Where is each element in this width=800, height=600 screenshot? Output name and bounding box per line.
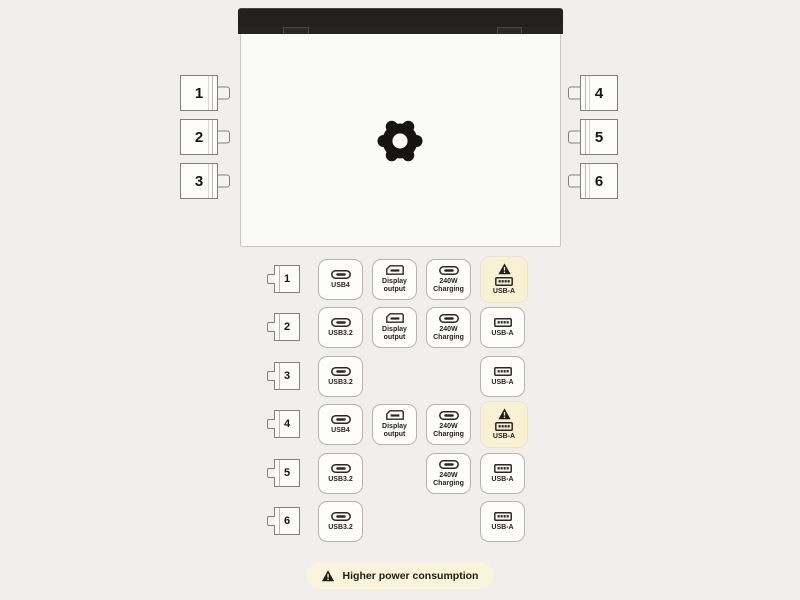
capability-badge-usb-a-port-1: USB-A bbox=[480, 256, 528, 303]
port-number: 5 bbox=[595, 129, 603, 146]
port-number: 4 bbox=[595, 85, 603, 102]
badge-label: USB3.2 bbox=[328, 476, 353, 484]
port-number: 6 bbox=[284, 515, 290, 527]
expansion-card-port-5: 5 bbox=[580, 119, 618, 155]
badge-label: USB3.2 bbox=[328, 524, 353, 532]
legend-label: Higher power consumption bbox=[343, 570, 479, 582]
usb-c-icon bbox=[331, 270, 351, 279]
usb-c-icon bbox=[439, 314, 459, 323]
expansion-card-port-2: 2 bbox=[180, 119, 218, 155]
matrix-port-3: 3 bbox=[274, 362, 300, 390]
expansion-card-port-1: 1 bbox=[180, 75, 218, 111]
expansion-card-port-6: 6 bbox=[580, 163, 618, 199]
usb-c-icon bbox=[331, 318, 351, 327]
matrix-port-1: 1 bbox=[274, 265, 300, 293]
capability-badge-usb-a-port-2: USB-A bbox=[480, 307, 525, 348]
usb-c-icon bbox=[331, 464, 351, 473]
displayport-icon bbox=[386, 265, 404, 275]
badge-label: USB-A bbox=[491, 330, 513, 338]
port-number: 1 bbox=[284, 273, 290, 285]
legend-higher-power-consumption: Higher power consumption bbox=[307, 562, 494, 589]
badge-label: USB3.2 bbox=[328, 330, 353, 338]
badge-label: Display output bbox=[375, 423, 415, 439]
badge-label: 240W Charging bbox=[429, 423, 469, 439]
usb-c-icon bbox=[331, 367, 351, 376]
port-number: 2 bbox=[195, 129, 203, 146]
card-connector-tab bbox=[568, 87, 580, 100]
capability-badge-usb3-2-port-2: USB3.2 bbox=[318, 307, 363, 348]
laptop-lid bbox=[238, 8, 563, 27]
usb-a-icon bbox=[494, 367, 512, 376]
usb-c-icon bbox=[439, 266, 459, 275]
usb-a-icon bbox=[494, 318, 512, 327]
usb-c-icon bbox=[331, 415, 351, 424]
card-connector-tab bbox=[218, 131, 230, 144]
capability-badge-display-output-port-4: Display output bbox=[372, 404, 417, 445]
framework-gear-icon bbox=[377, 118, 423, 164]
matrix-port-6: 6 bbox=[274, 507, 300, 535]
capability-badge-240w-charging-port-1: 240W Charging bbox=[426, 259, 471, 300]
port-number: 5 bbox=[284, 467, 290, 479]
badge-label: USB3.2 bbox=[328, 379, 353, 387]
capability-badge-240w-charging-port-4: 240W Charging bbox=[426, 404, 471, 445]
card-connector-tab bbox=[267, 516, 275, 526]
card-connector-tab bbox=[568, 131, 580, 144]
usb-a-icon bbox=[494, 464, 512, 473]
badge-label: USB-A bbox=[491, 476, 513, 484]
laptop-hinge bbox=[238, 27, 563, 34]
badge-label: 240W Charging bbox=[429, 472, 469, 488]
capability-badge-display-output-port-2: Display output bbox=[372, 307, 417, 348]
capability-badge-usb3-2-port-3: USB3.2 bbox=[318, 356, 363, 397]
usb-a-icon bbox=[495, 277, 513, 286]
expansion-card-port-4: 4 bbox=[580, 75, 618, 111]
usb-c-icon bbox=[439, 411, 459, 420]
card-connector-tab bbox=[218, 87, 230, 100]
badge-label: 240W Charging bbox=[429, 278, 469, 294]
matrix-port-2: 2 bbox=[274, 313, 300, 341]
port-capability-diagram: Higher power consumption 1234561USB4Disp… bbox=[0, 0, 800, 600]
badge-label: USB4 bbox=[331, 282, 350, 290]
badge-label: Display output bbox=[375, 278, 415, 294]
capability-badge-usb-a-port-5: USB-A bbox=[480, 453, 525, 494]
capability-badge-usb4-port-1: USB4 bbox=[318, 259, 363, 300]
capability-badge-usb-a-port-3: USB-A bbox=[480, 356, 525, 397]
port-number: 4 bbox=[284, 418, 290, 430]
matrix-port-5: 5 bbox=[274, 459, 300, 487]
hinge-block bbox=[497, 27, 522, 34]
capability-badge-240w-charging-port-5: 240W Charging bbox=[426, 453, 471, 494]
hinge-block bbox=[283, 27, 309, 34]
card-connector-tab bbox=[267, 274, 275, 284]
badge-label: USB-A bbox=[493, 288, 515, 296]
matrix-port-4: 4 bbox=[274, 410, 300, 438]
warning-icon bbox=[498, 408, 511, 420]
port-number: 3 bbox=[195, 173, 203, 190]
usb-c-icon bbox=[439, 460, 459, 469]
capability-badge-usb-a-port-4: USB-A bbox=[480, 401, 528, 448]
card-connector-tab bbox=[568, 175, 580, 188]
capability-badge-240w-charging-port-2: 240W Charging bbox=[426, 307, 471, 348]
card-connector-tab bbox=[218, 175, 230, 188]
badge-label: USB4 bbox=[331, 427, 350, 435]
warning-icon bbox=[498, 263, 511, 275]
capability-badge-display-output-port-1: Display output bbox=[372, 259, 417, 300]
port-number: 2 bbox=[284, 321, 290, 333]
badge-label: USB-A bbox=[491, 379, 513, 387]
badge-label: USB-A bbox=[493, 433, 515, 441]
warning-icon bbox=[322, 570, 335, 582]
badge-label: Display output bbox=[375, 326, 415, 342]
displayport-icon bbox=[386, 313, 404, 323]
card-connector-tab bbox=[267, 371, 275, 381]
capability-badge-usb3-2-port-6: USB3.2 bbox=[318, 501, 363, 542]
port-number: 6 bbox=[595, 173, 603, 190]
card-connector-tab bbox=[267, 419, 275, 429]
usb-a-icon bbox=[495, 422, 513, 431]
capability-badge-usb-a-port-6: USB-A bbox=[480, 501, 525, 542]
capability-badge-usb3-2-port-5: USB3.2 bbox=[318, 453, 363, 494]
capability-badge-usb4-port-4: USB4 bbox=[318, 404, 363, 445]
port-number: 3 bbox=[284, 370, 290, 382]
port-number: 1 bbox=[195, 85, 203, 102]
usb-c-icon bbox=[331, 512, 351, 521]
card-connector-tab bbox=[267, 322, 275, 332]
badge-label: USB-A bbox=[491, 524, 513, 532]
expansion-card-port-3: 3 bbox=[180, 163, 218, 199]
badge-label: 240W Charging bbox=[429, 326, 469, 342]
displayport-icon bbox=[386, 410, 404, 420]
usb-a-icon bbox=[494, 512, 512, 521]
card-connector-tab bbox=[267, 468, 275, 478]
